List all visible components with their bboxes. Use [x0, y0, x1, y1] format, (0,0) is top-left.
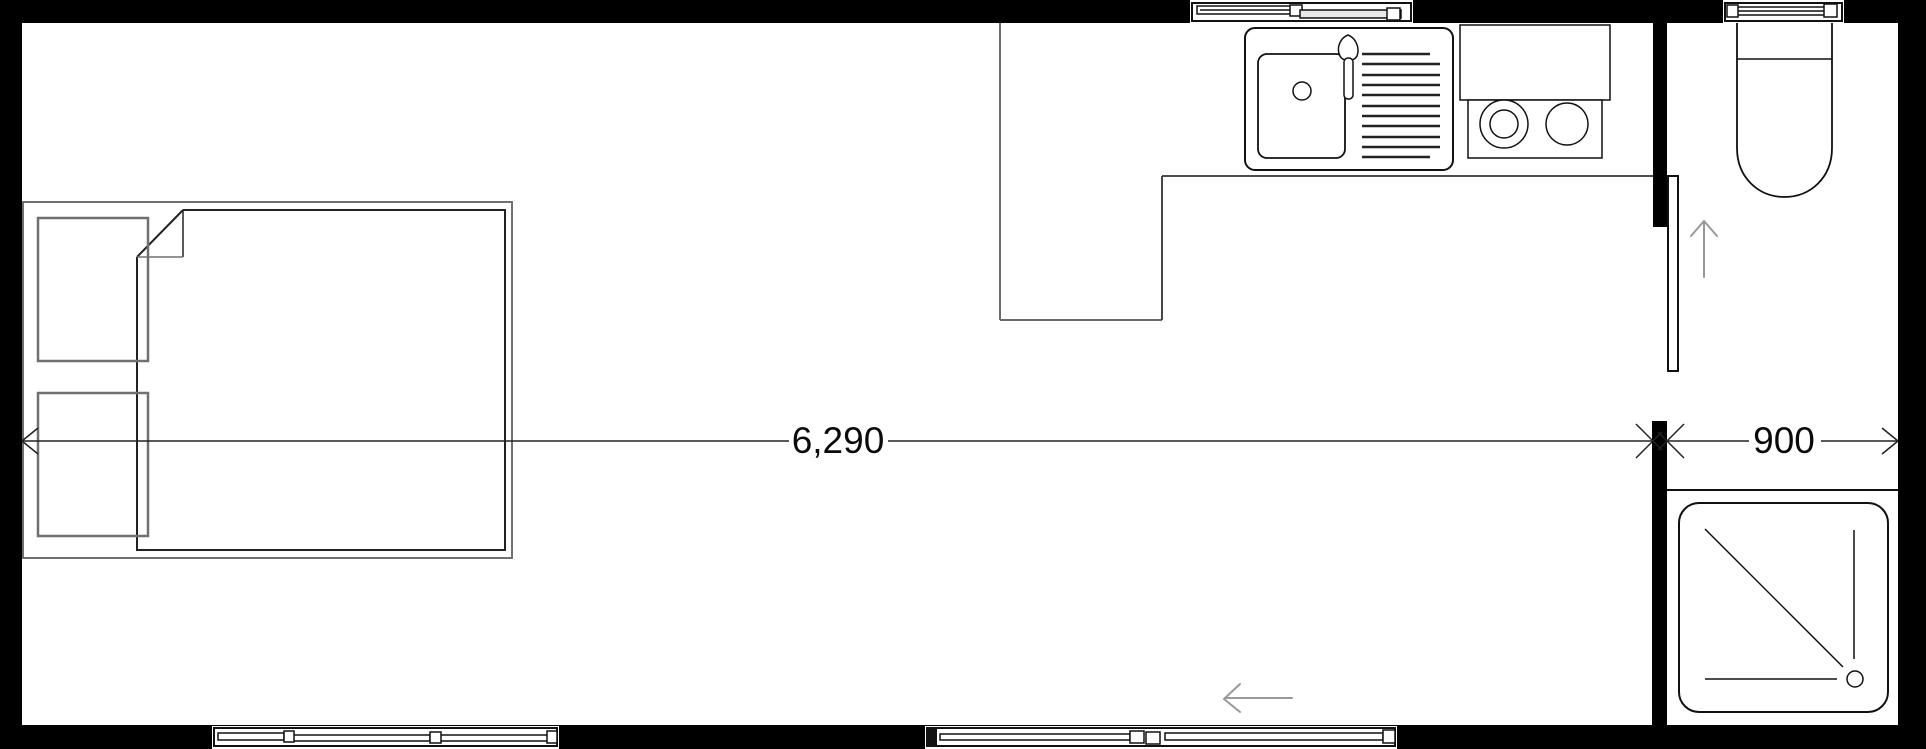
burner-right: [1546, 103, 1588, 145]
window-sash: [437, 735, 551, 741]
kitchen: [1000, 23, 1653, 320]
window-sash-block: [1727, 5, 1738, 17]
bathroom-partition-upper: [1653, 23, 1667, 227]
window-sash-block: [284, 731, 294, 742]
bed: [23, 202, 512, 558]
dimension-label-bath: 900: [1753, 420, 1815, 461]
window-sash: [1165, 733, 1383, 740]
arrow-wing: [1224, 684, 1240, 699]
dimension-bath: 900: [1658, 420, 1898, 461]
window-sash: [292, 735, 430, 741]
dimension-arrowhead: [1882, 428, 1898, 441]
window-sash-block: [547, 731, 557, 743]
dimension-arrowhead: [22, 441, 38, 454]
shower-drain: [1847, 671, 1863, 687]
mattress: [137, 210, 505, 550]
top-wall: [0, 0, 1926, 23]
toilet-bowl: [1737, 23, 1832, 197]
pillow-top: [38, 218, 148, 361]
cooktop: [1460, 25, 1610, 158]
kitchen-sink: [1245, 28, 1453, 170]
window-sash-block: [1146, 732, 1160, 744]
toilet: [1737, 23, 1832, 197]
window-sash-block: [1130, 731, 1144, 743]
sink-basin: [1258, 54, 1345, 158]
arrow-wing: [1224, 699, 1240, 712]
bathroom-window: [1723, 0, 1844, 23]
range-hood: [1460, 25, 1610, 100]
bathroom-partition: [1652, 23, 1667, 725]
sink-drain: [1293, 82, 1311, 100]
window-sash: [218, 733, 284, 740]
dimension-arrowhead: [22, 428, 38, 441]
floor-plan-drawing: 6,290 900: [0, 0, 1926, 749]
window-sash: [940, 734, 1130, 740]
left-wall: [0, 0, 22, 749]
window-sash-block: [430, 732, 441, 743]
window-sash-block: [1824, 4, 1837, 17]
bathroom: [1667, 23, 1898, 712]
window-sash-block: [1387, 8, 1400, 20]
arrow-wing: [1704, 221, 1717, 236]
bedroom-window: [212, 726, 559, 749]
window-sash-block: [1383, 730, 1395, 743]
faucet-spout: [1344, 58, 1353, 99]
pillow-bottom: [38, 393, 148, 536]
bathroom-partition-lower: [1652, 421, 1667, 725]
burner-left-inner: [1490, 110, 1518, 138]
dimension-arrowhead: [1882, 441, 1898, 454]
arrow-wing: [1691, 221, 1704, 236]
window-sash: [1300, 10, 1401, 18]
shower: [1667, 490, 1898, 712]
dimension-label-main: 6,290: [792, 420, 885, 461]
kitchen-window: [1190, 0, 1413, 23]
door-swing-arrow-icon: [1691, 221, 1717, 277]
entry-arrow-icon: [1224, 684, 1292, 712]
floor-plan-canvas: 6,290 900: [0, 0, 1926, 749]
living-window: [925, 726, 1397, 749]
window-sash-block: [927, 727, 937, 747]
right-wall: [1898, 0, 1926, 749]
door-leaf: [1668, 176, 1678, 371]
